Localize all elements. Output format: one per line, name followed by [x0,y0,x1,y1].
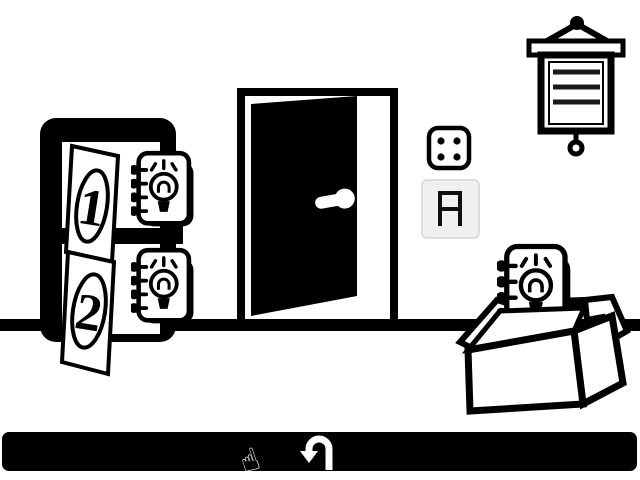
cabinet-door-1[interactable]: 1 [66,146,118,262]
exit-door[interactable] [237,88,398,330]
wall-chart[interactable] [529,16,623,154]
undo-button[interactable] [296,432,344,471]
game-scene: 1 2 [0,0,640,480]
cabinet-door-2[interactable]: 2 [62,252,114,374]
cabinet-hint-notepad-2[interactable] [131,250,193,323]
chart-pull-ring-icon [570,142,582,154]
u-turn-arrow-icon [296,432,344,471]
toolbar [2,432,637,471]
cabinet-hint-notepad-1[interactable] [131,153,193,226]
chart-frame [541,55,611,131]
segment-display[interactable] [422,180,479,238]
dice[interactable] [429,128,469,168]
scene-canvas: 1 2 [0,0,640,480]
storage-box-front[interactable] [468,308,623,411]
